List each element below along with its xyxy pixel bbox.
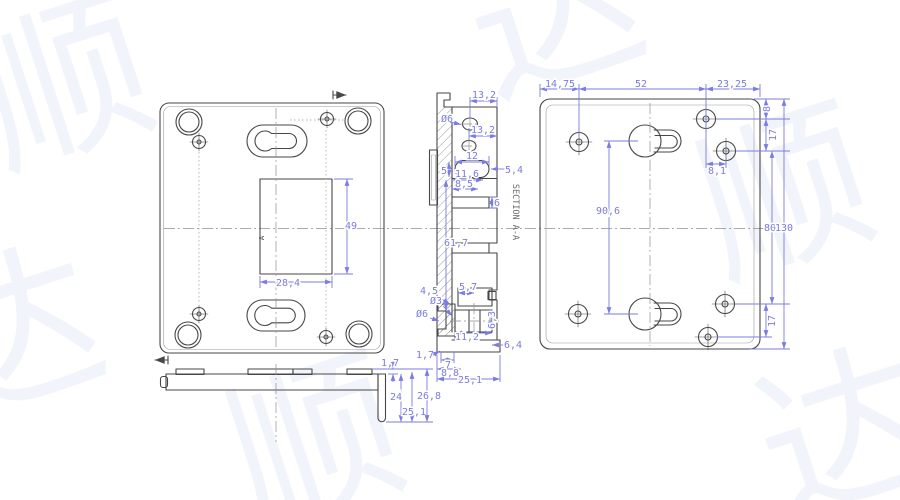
dim-13-2b: 13,2 (471, 125, 495, 136)
dim-11-2: 11,2 (455, 332, 479, 343)
section-marker-label: A (258, 235, 266, 240)
dim-17-top: 17 (768, 129, 779, 141)
dim-52: 52 (635, 79, 647, 90)
dim-8: 8 (762, 106, 773, 112)
dim-6-4: 6,4 (504, 340, 522, 351)
dim-depth: 25,1 (402, 407, 426, 418)
dim-8-5: 8,5 (455, 179, 473, 190)
drawing-stage: 顺 达 顺 达 顺 达 (0, 0, 900, 500)
dim-total: 26,8 (417, 391, 441, 402)
section-dimensions: 13,2 Ø6 13,2 12 5 11,6 (416, 90, 523, 386)
section-view: SECTION A-A 13,2 Ø6 13,2 12 (416, 90, 523, 386)
screw-hole (317, 328, 335, 346)
screw-hole (190, 133, 208, 151)
dim-12: 12 (466, 151, 478, 162)
dim-tab-height: 1,7 (381, 358, 399, 369)
dim-1-7: 1,7 (416, 350, 434, 361)
front-dimensions: 49 28,4 (260, 179, 357, 289)
dim-13-2a: 13,2 (472, 90, 496, 101)
dim-8-8: 8,8 (441, 368, 459, 379)
dim-61-7: 61,7 (444, 238, 468, 249)
back-view: 14,75 52 23,25 8 17 8,1 90,6 (540, 79, 793, 350)
dim-slot-height: 49 (345, 221, 357, 232)
screw-hole (318, 110, 336, 128)
cad-drawing-canvas: A 49 28,4 (0, 0, 900, 500)
dim-5-4: 5,4 (505, 165, 523, 176)
dim-slot-width: 28,4 (276, 278, 300, 289)
side-flange (378, 374, 386, 422)
screw-hole (565, 301, 591, 327)
screw-hole (190, 305, 208, 323)
dim-23-25: 23,25 (717, 79, 747, 90)
dim-leg: 24 (390, 392, 402, 403)
dim-6: 6 (494, 198, 500, 209)
dim-8-1: 8,1 (708, 166, 726, 177)
dim-90-6: 90,6 (596, 206, 620, 217)
dim-130: 130 (775, 223, 793, 234)
dim-6-3: 6,3 (487, 311, 498, 329)
dim-5-7: 5,7 (459, 282, 477, 293)
dim-14-75: 14,75 (545, 79, 575, 90)
keyhole-slot-top (247, 125, 307, 157)
rect-cutout (260, 179, 332, 274)
dim-dia3: Ø3 (430, 295, 442, 307)
screw-hole (712, 291, 738, 317)
bottom-view: 1,7 24 25,1 26,8 (161, 358, 442, 442)
section-label: SECTION A-A (510, 184, 520, 240)
front-view: A 49 28,4 (155, 91, 384, 364)
dim-17-bottom: 17 (767, 315, 778, 327)
dim-dia6-boss: Ø6 (416, 308, 428, 320)
bottom-dimensions: 1,7 24 25,1 26,8 (372, 358, 441, 422)
dim-5: 5 (441, 166, 447, 177)
dim-25-1: 25,1 (458, 375, 482, 386)
dim-dia6-top: Ø6 (441, 113, 453, 125)
